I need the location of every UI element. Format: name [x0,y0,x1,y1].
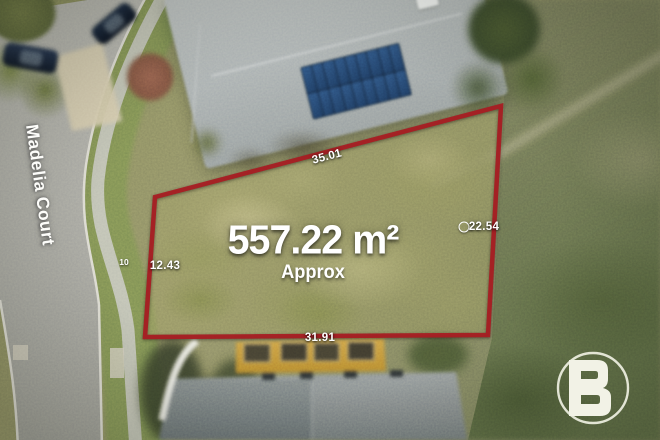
agency-logo [552,343,636,435]
aerial-listing-photo: 35.01 22.54 31.91 12.43 10 557.22 m² App… [0,0,660,440]
dimension-right: 22.54 [469,221,499,233]
dimension-bottom: 31.91 [305,332,335,344]
logo-letter-b [569,360,611,416]
circle-marker-icon [459,222,470,233]
lot-area-label: 557.22 m² [228,217,399,264]
lot-area-qualifier: Approx [281,262,345,284]
dimension-left: 12.43 [150,260,180,272]
dimension-left-marker: 10 [119,257,128,267]
